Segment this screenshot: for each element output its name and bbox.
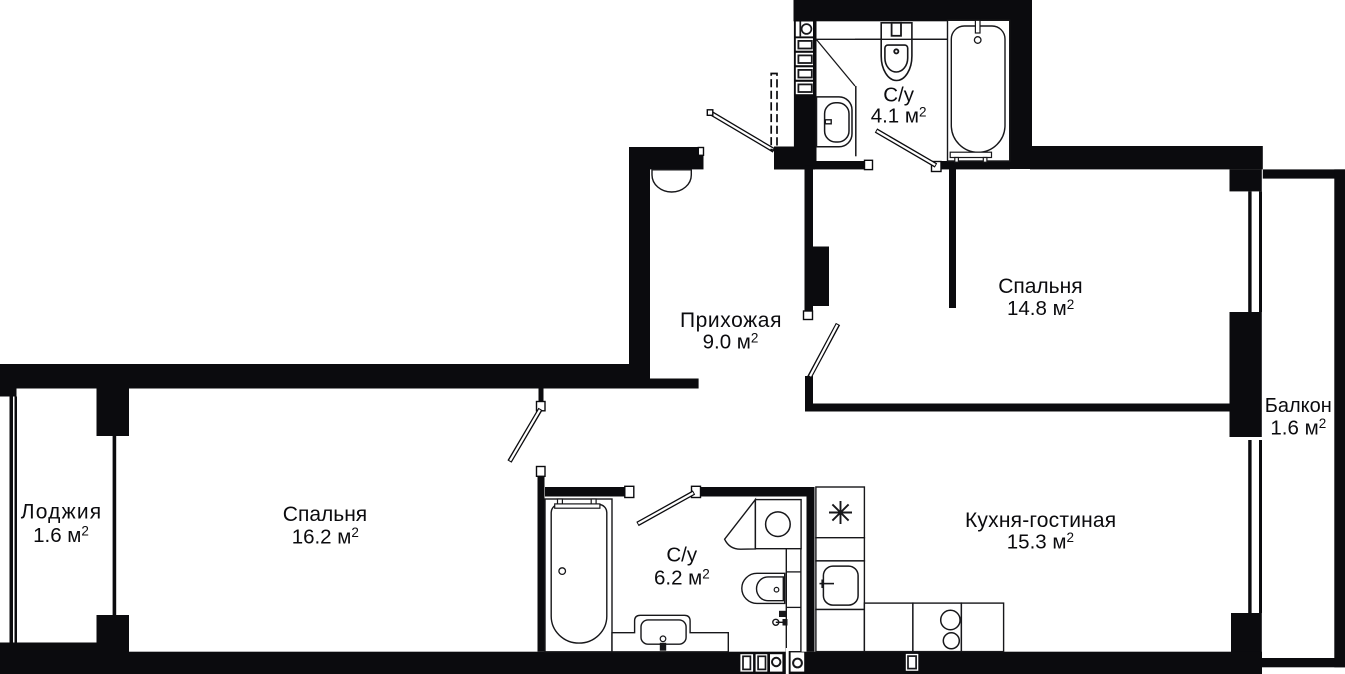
svg-text:1.6 м2: 1.6 м2 [1270, 416, 1326, 439]
svg-text:9.0 м2: 9.0 м2 [703, 330, 759, 353]
svg-text:4.1 м2: 4.1 м2 [871, 104, 927, 127]
svg-text:6.2 м2: 6.2 м2 [654, 566, 710, 589]
svg-text:С/у: С/у [883, 84, 915, 107]
svg-text:16.2 м2: 16.2 м2 [292, 525, 359, 548]
svg-text:14.8 м2: 14.8 м2 [1007, 297, 1074, 320]
svg-text:Кухня-гостиная: Кухня-гостиная [965, 509, 1116, 532]
svg-text:С/у: С/у [666, 544, 698, 567]
svg-text:15.3 м2: 15.3 м2 [1007, 530, 1074, 553]
svg-text:Прихожая: Прихожая [680, 309, 782, 332]
svg-text:Лоджия: Лоджия [21, 501, 103, 524]
svg-text:Спальня: Спальня [998, 275, 1082, 298]
svg-text:1.6 м2: 1.6 м2 [33, 524, 89, 547]
svg-text:Балкон: Балкон [1265, 395, 1332, 417]
svg-text:Спальня: Спальня [283, 503, 367, 526]
